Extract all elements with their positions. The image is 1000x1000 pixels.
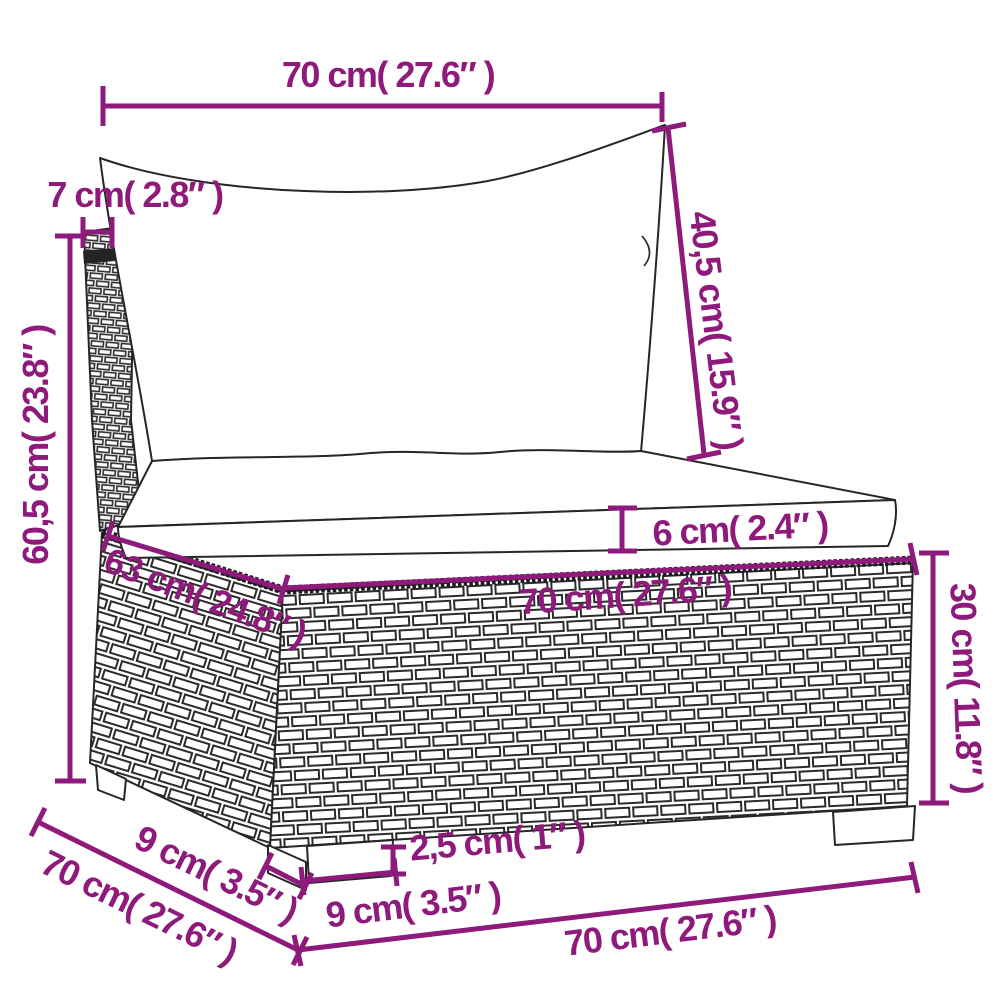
dim-label-back-cushion-width: 70 cm( 27.6″ ) [282, 57, 494, 93]
dim-label-armrest-post-width: 7 cm( 2.8″ ) [47, 177, 222, 213]
dim-label-total-height: 60,5 cm( 23.8″ ) [18, 325, 54, 564]
dim-line-total-height [55, 236, 86, 781]
dimension-diagram: 70 cm( 27.6″ ) 7 cm( 2.8″ ) 40,5 cm( 15.… [0, 0, 1000, 1000]
dim-label-seat-cushion-thickness: 6 cm( 2.4″ ) [652, 506, 829, 551]
dim-label-base-height: 30 cm( 11.8″ ) [944, 582, 987, 794]
front-right-foot [833, 806, 915, 845]
